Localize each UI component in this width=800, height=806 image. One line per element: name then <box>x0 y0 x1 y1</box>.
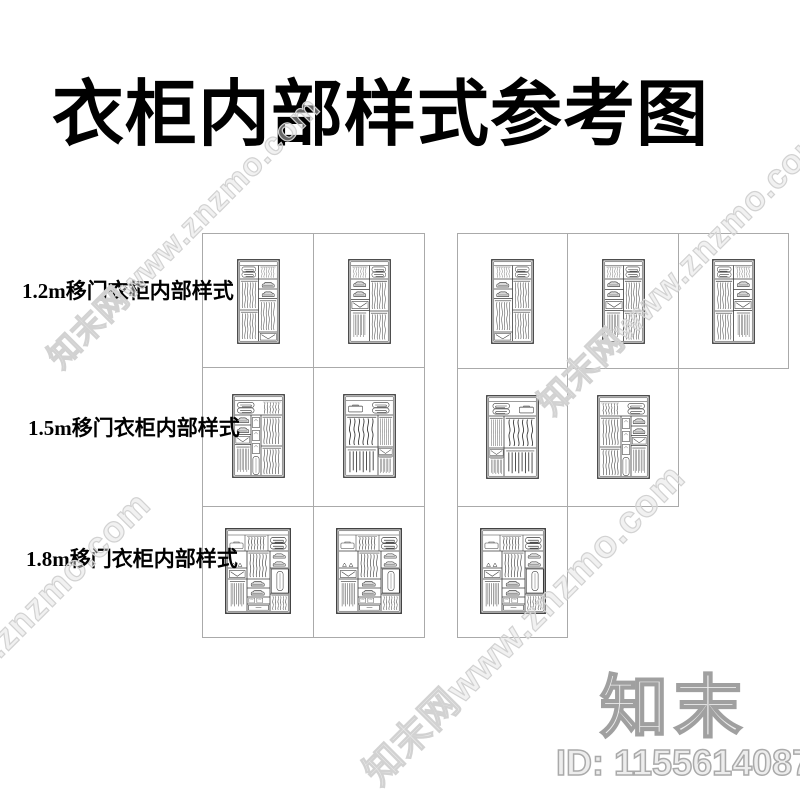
row-label-1-5m: 1.5m移门衣柜内部样式 <box>28 412 228 442</box>
grid-cell-row1-left-2 <box>313 233 425 368</box>
wardrobe-diagram-1-2m-style-4 <box>602 259 645 344</box>
wardrobe-diagram-1-5m-style-4 <box>597 395 650 479</box>
row-label-1-8m: 1.8m移门衣柜内部样式 <box>26 543 226 573</box>
wardrobe-diagram-1-8m-style-1 <box>225 528 291 614</box>
wardrobe-diagram-1-5m-style-3 <box>486 395 539 479</box>
wardrobe-diagram-1-8m-style-3 <box>480 528 546 614</box>
grid-cell-row3-right-1 <box>457 506 568 638</box>
page-title: 衣柜内部样式参考图 <box>52 78 709 154</box>
grid-cell-row2-right-1 <box>457 368 568 507</box>
wardrobe-diagram-1-2m-style-5 <box>712 259 755 344</box>
site-logo: 知末 <box>600 652 748 751</box>
grid-cell-row1-right-3 <box>678 233 789 369</box>
row-label-1-2m: 1.2m移门衣柜内部样式 <box>22 275 222 305</box>
wardrobe-diagram-1-5m-style-2 <box>343 394 396 478</box>
wardrobe-diagram-1-8m-style-2 <box>336 528 402 614</box>
grid-cell-row2-right-2 <box>567 368 679 507</box>
grid-cell-row3-left-2 <box>313 506 425 638</box>
watermark-text: 知末网www.znzmo.com <box>0 478 160 806</box>
grid-cell-row2-left-2 <box>313 367 425 507</box>
image-id: ID: 1155614087 <box>556 742 800 784</box>
grid-cell-row1-right-2 <box>567 233 679 369</box>
grid-cell-row1-right-1 <box>457 233 568 369</box>
wardrobe-diagram-1-2m-style-2 <box>348 259 391 344</box>
wardrobe-diagram-1-2m-style-3 <box>491 259 534 344</box>
wardrobe-diagram-1-2m-style-1 <box>237 259 280 344</box>
